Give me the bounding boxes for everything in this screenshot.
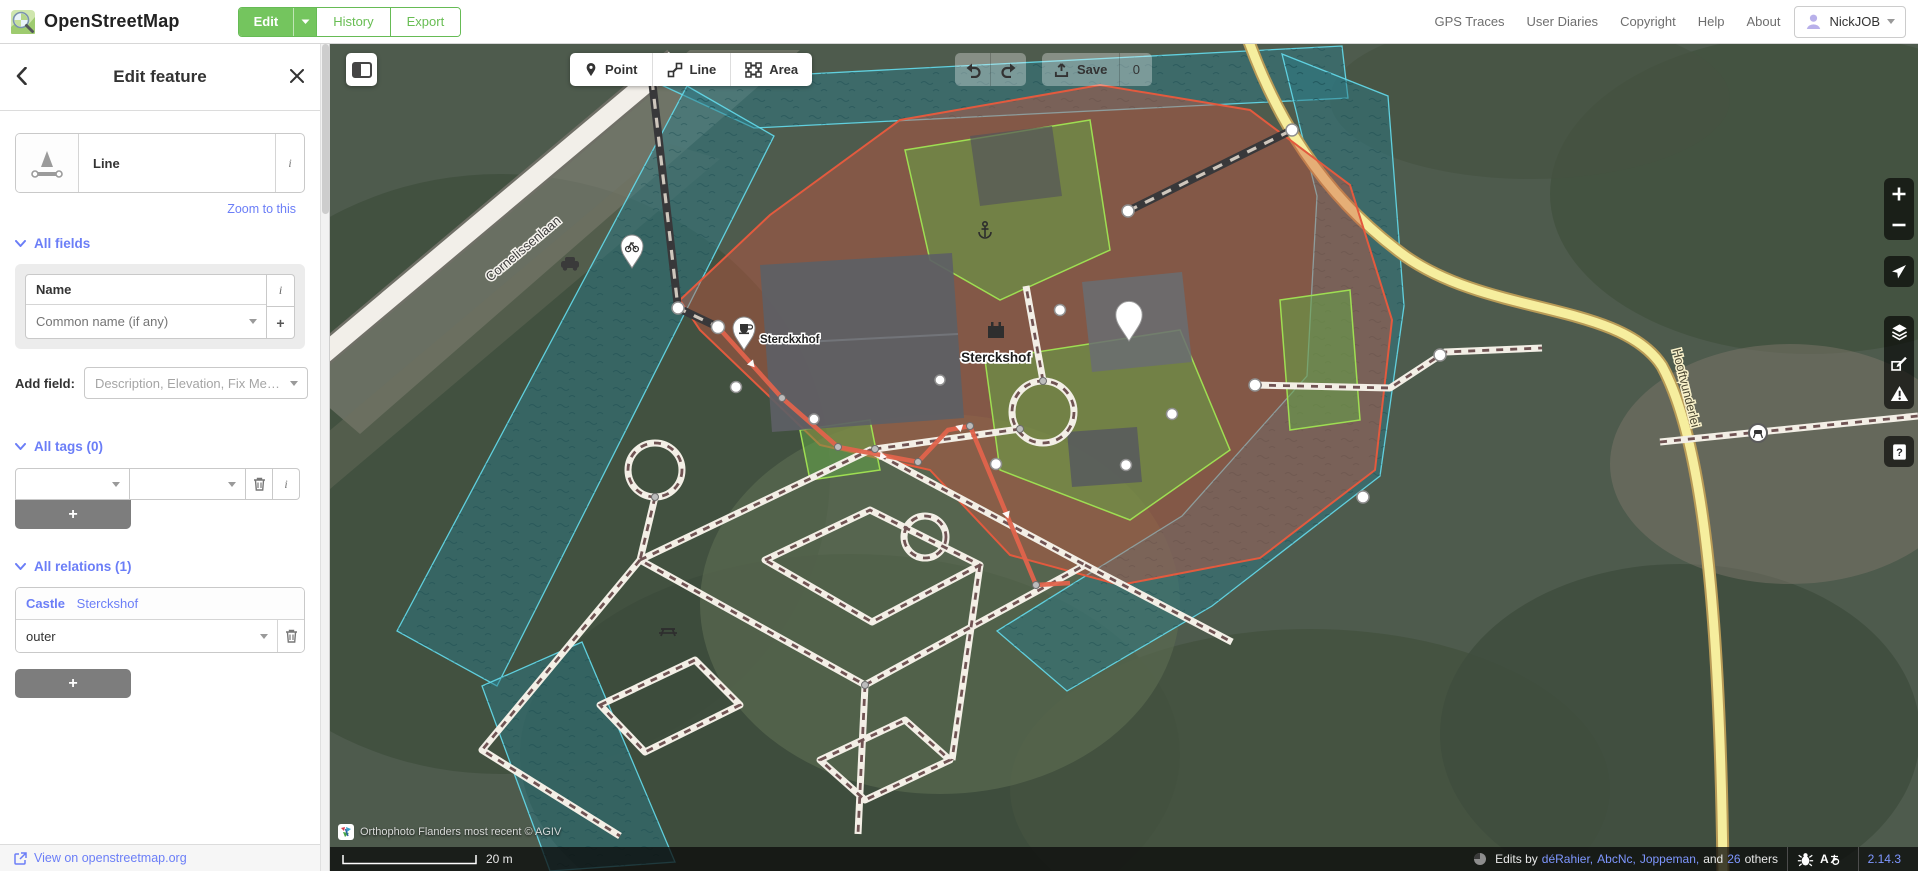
help-control: ? xyxy=(1884,436,1914,467)
trash-icon xyxy=(285,629,298,643)
relation-type-label[interactable]: Castle xyxy=(26,596,65,611)
external-link-icon xyxy=(14,852,27,865)
tag-info-button[interactable]: i xyxy=(273,468,300,500)
panel-title: Edit feature xyxy=(0,67,320,87)
point-icon xyxy=(584,61,598,78)
zoom-to-this-link[interactable]: Zoom to this xyxy=(0,202,296,216)
edit-button-group: Edit History Export xyxy=(238,7,462,37)
place-label-sterckxhof: Sterckxhof xyxy=(760,334,820,346)
redo-icon xyxy=(1000,62,1018,78)
view-on-osm-label: View on openstreetmap.org xyxy=(34,851,187,865)
all-fields-label: All fields xyxy=(34,236,90,251)
tag-editor-row: i xyxy=(15,468,320,500)
name-input[interactable] xyxy=(26,305,249,338)
version-segment: 2.14.3 xyxy=(1858,847,1918,871)
relation-role-combobox[interactable]: outer xyxy=(16,620,277,652)
minus-icon xyxy=(1891,217,1907,233)
feature-type-card[interactable]: Line i xyxy=(15,133,305,193)
sidebar-toggle-button[interactable] xyxy=(346,53,377,86)
kana-glyph-icon xyxy=(1829,854,1840,866)
translate-button[interactable]: A xyxy=(1820,852,1840,866)
all-fields-toggle[interactable]: All fields xyxy=(15,236,320,251)
svg-text:?: ? xyxy=(1896,446,1903,458)
warning-icon xyxy=(1890,385,1909,402)
add-relation-button[interactable]: + xyxy=(15,669,131,698)
undo-redo-group xyxy=(955,53,1026,86)
upload-icon xyxy=(1054,62,1069,78)
relation-role-value: outer xyxy=(16,629,260,644)
view-on-osm-link[interactable]: View on openstreetmap.org xyxy=(0,844,320,871)
issues-button[interactable] xyxy=(1884,378,1914,409)
others-suffix: others xyxy=(1745,852,1778,866)
nav-link-gps-traces[interactable]: GPS Traces xyxy=(1434,14,1504,29)
layers-icon xyxy=(1890,322,1909,341)
add-tag-button[interactable]: + xyxy=(15,500,131,529)
tag-delete-button[interactable] xyxy=(246,468,273,500)
name-field-side-buttons: i + xyxy=(267,274,295,339)
combobox-caret-icon[interactable] xyxy=(249,319,257,324)
sidebar-scrollbar[interactable] xyxy=(320,44,330,871)
edit-feature-panel: Edit feature Line i Zoom to this All fie… xyxy=(0,44,320,871)
top-navbar: OpenStreetMap Edit History Export GPS Tr… xyxy=(0,0,1918,44)
undo-button[interactable] xyxy=(955,53,990,86)
chevron-down-icon xyxy=(1887,19,1895,24)
save-group: Save 0 xyxy=(1042,53,1152,86)
recent-edits-note: Edits by déRahier, AbcNc, Joppeman, and … xyxy=(1495,852,1778,866)
agiv-logo-icon xyxy=(338,824,354,840)
zoom-out-button[interactable] xyxy=(1884,209,1914,240)
zoom-in-button[interactable] xyxy=(1884,178,1914,209)
all-tags-toggle[interactable]: All tags (0) xyxy=(15,439,320,454)
all-relations-toggle[interactable]: All relations (1) xyxy=(15,559,320,574)
chevron-down-icon xyxy=(301,19,310,25)
nav-link-help[interactable]: Help xyxy=(1698,14,1725,29)
add-field-row: Add field: Description, Elevation, Fix M… xyxy=(15,367,305,399)
version-label[interactable]: 2.14.3 xyxy=(1868,852,1909,866)
add-field-placeholder: Description, Elevation, Fix Me… xyxy=(85,376,290,391)
redo-button[interactable] xyxy=(990,53,1026,86)
user-menu-button[interactable]: NickJOB xyxy=(1794,6,1906,38)
help-button[interactable]: ? xyxy=(1884,436,1914,467)
map-attribution: Orthophoto Flanders most recent © AGIV xyxy=(338,824,561,840)
bbq-circle-marker[interactable] xyxy=(1749,424,1767,442)
feature-type-label: Line xyxy=(79,134,275,192)
all-relations-label: All relations (1) xyxy=(34,559,132,574)
name-field-label: Name xyxy=(26,275,266,305)
plus-icon xyxy=(1891,186,1907,202)
bug-report-icon[interactable] xyxy=(1797,852,1814,867)
nav-link-about[interactable]: About xyxy=(1746,14,1780,29)
add-multilingual-name-button[interactable]: + xyxy=(267,306,295,339)
scale-indicator: 20 m xyxy=(342,852,513,866)
brand-title: OpenStreetMap xyxy=(44,11,180,32)
osm-brand[interactable]: OpenStreetMap xyxy=(10,9,180,35)
statusbar-icons: A xyxy=(1787,847,1849,871)
back-button[interactable] xyxy=(8,59,34,93)
edit-button[interactable]: Edit xyxy=(239,8,294,36)
place-label-sterckshof: Sterckshof xyxy=(961,350,1031,365)
map-canvas[interactable]: Cornelissenlaan Hooftvunderlei Sterckxho… xyxy=(330,44,1918,871)
editor-link-3[interactable]: Joppeman, xyxy=(1640,852,1699,866)
all-tags-label: All tags (0) xyxy=(34,439,103,454)
osm-id-editor: OpenStreetMap Edit History Export GPS Tr… xyxy=(0,0,1918,871)
edits-prefix: Edits by xyxy=(1495,852,1538,866)
edit-overlay-icon xyxy=(1890,354,1908,372)
combobox-caret-icon xyxy=(228,482,236,487)
save-label: Save xyxy=(1077,62,1107,77)
panel-toggle-icon xyxy=(352,62,372,78)
history-button[interactable]: History xyxy=(316,8,389,36)
line-icon xyxy=(667,62,683,78)
map-area[interactable]: Cornelissenlaan Hooftvunderlei Sterckxho… xyxy=(330,44,1918,871)
geolocate-button[interactable] xyxy=(1884,256,1914,287)
draw-area-label: Area xyxy=(769,62,798,77)
status-bar: 20 m Edits by déRahier, AbcNc, Joppeman,… xyxy=(330,847,1918,871)
contributors-icon[interactable] xyxy=(1473,852,1487,866)
add-field-label: Add field: xyxy=(15,376,75,391)
translate-label: A xyxy=(1820,852,1829,866)
add-field-combobox[interactable]: Description, Elevation, Fix Me… xyxy=(84,367,308,399)
area-icon xyxy=(745,62,762,78)
panel-header: Edit feature xyxy=(0,44,320,111)
draw-point-button[interactable]: Point xyxy=(570,53,652,86)
nav-link-copyright[interactable]: Copyright xyxy=(1620,14,1676,29)
draw-line-button[interactable]: Line xyxy=(652,53,731,86)
combobox-caret-icon xyxy=(290,381,298,386)
others-count-link[interactable]: 26 xyxy=(1727,852,1740,866)
scale-label: 20 m xyxy=(486,852,513,866)
close-button[interactable] xyxy=(282,59,312,93)
username-label: NickJOB xyxy=(1829,14,1880,29)
editor-link-1[interactable]: déRahier, xyxy=(1542,852,1593,866)
help-book-icon: ? xyxy=(1891,443,1908,461)
combobox-caret-icon xyxy=(260,634,268,639)
chevron-down-icon xyxy=(15,563,26,570)
scale-bar xyxy=(342,854,478,865)
map-data-button[interactable] xyxy=(1884,347,1914,378)
backgrounds-button[interactable] xyxy=(1884,316,1914,347)
draw-toolbar: Point Line Area xyxy=(570,53,812,86)
name-field-card: Name i + xyxy=(15,264,305,349)
chevron-down-icon xyxy=(15,240,26,247)
nav-links: GPS Traces User Diaries Copyright Help A… xyxy=(1434,14,1780,29)
and-text: and xyxy=(1703,852,1723,866)
edit-dropdown-button[interactable] xyxy=(293,8,316,36)
relation-header: Castle Sterckshof xyxy=(16,588,304,619)
geolocate-control xyxy=(1884,256,1914,287)
name-input-row xyxy=(26,305,266,338)
zoom-controls xyxy=(1884,178,1914,240)
name-field-box: Name xyxy=(25,274,267,339)
avatar-icon xyxy=(1805,13,1822,30)
relation-delete-button[interactable] xyxy=(277,620,304,652)
relation-name-link[interactable]: Sterckshof xyxy=(77,596,138,611)
navigation-arrow-icon xyxy=(1891,263,1908,280)
tag-key-combobox[interactable] xyxy=(15,468,130,500)
name-info-button[interactable]: i xyxy=(267,274,295,306)
attribution-text[interactable]: Orthophoto Flanders most recent © AGIV xyxy=(360,826,561,838)
layer-controls xyxy=(1884,316,1914,409)
relation-role-row: outer xyxy=(16,619,304,652)
save-count-badge: 0 xyxy=(1119,53,1152,86)
nav-link-user-diaries[interactable]: User Diaries xyxy=(1527,14,1599,29)
line-preset-icon xyxy=(16,134,79,192)
draw-area-button[interactable]: Area xyxy=(730,53,812,86)
relation-card: Castle Sterckshof outer xyxy=(15,587,305,653)
close-icon xyxy=(290,69,304,83)
osm-logo-icon xyxy=(10,9,36,35)
draw-line-label: Line xyxy=(690,62,717,77)
undo-icon xyxy=(964,62,982,78)
scrollbar-thumb[interactable] xyxy=(322,44,329,214)
export-button[interactable]: Export xyxy=(390,8,461,36)
chevron-left-icon xyxy=(16,67,27,85)
save-button[interactable]: Save xyxy=(1042,53,1119,86)
feature-info-button[interactable]: i xyxy=(275,134,304,192)
combobox-caret-icon xyxy=(112,482,120,487)
draw-point-label: Point xyxy=(605,62,638,77)
tag-value-combobox[interactable] xyxy=(130,468,246,500)
trash-icon xyxy=(253,477,266,491)
chevron-down-icon xyxy=(15,443,26,450)
editor-link-2[interactable]: AbcNc, xyxy=(1597,852,1636,866)
